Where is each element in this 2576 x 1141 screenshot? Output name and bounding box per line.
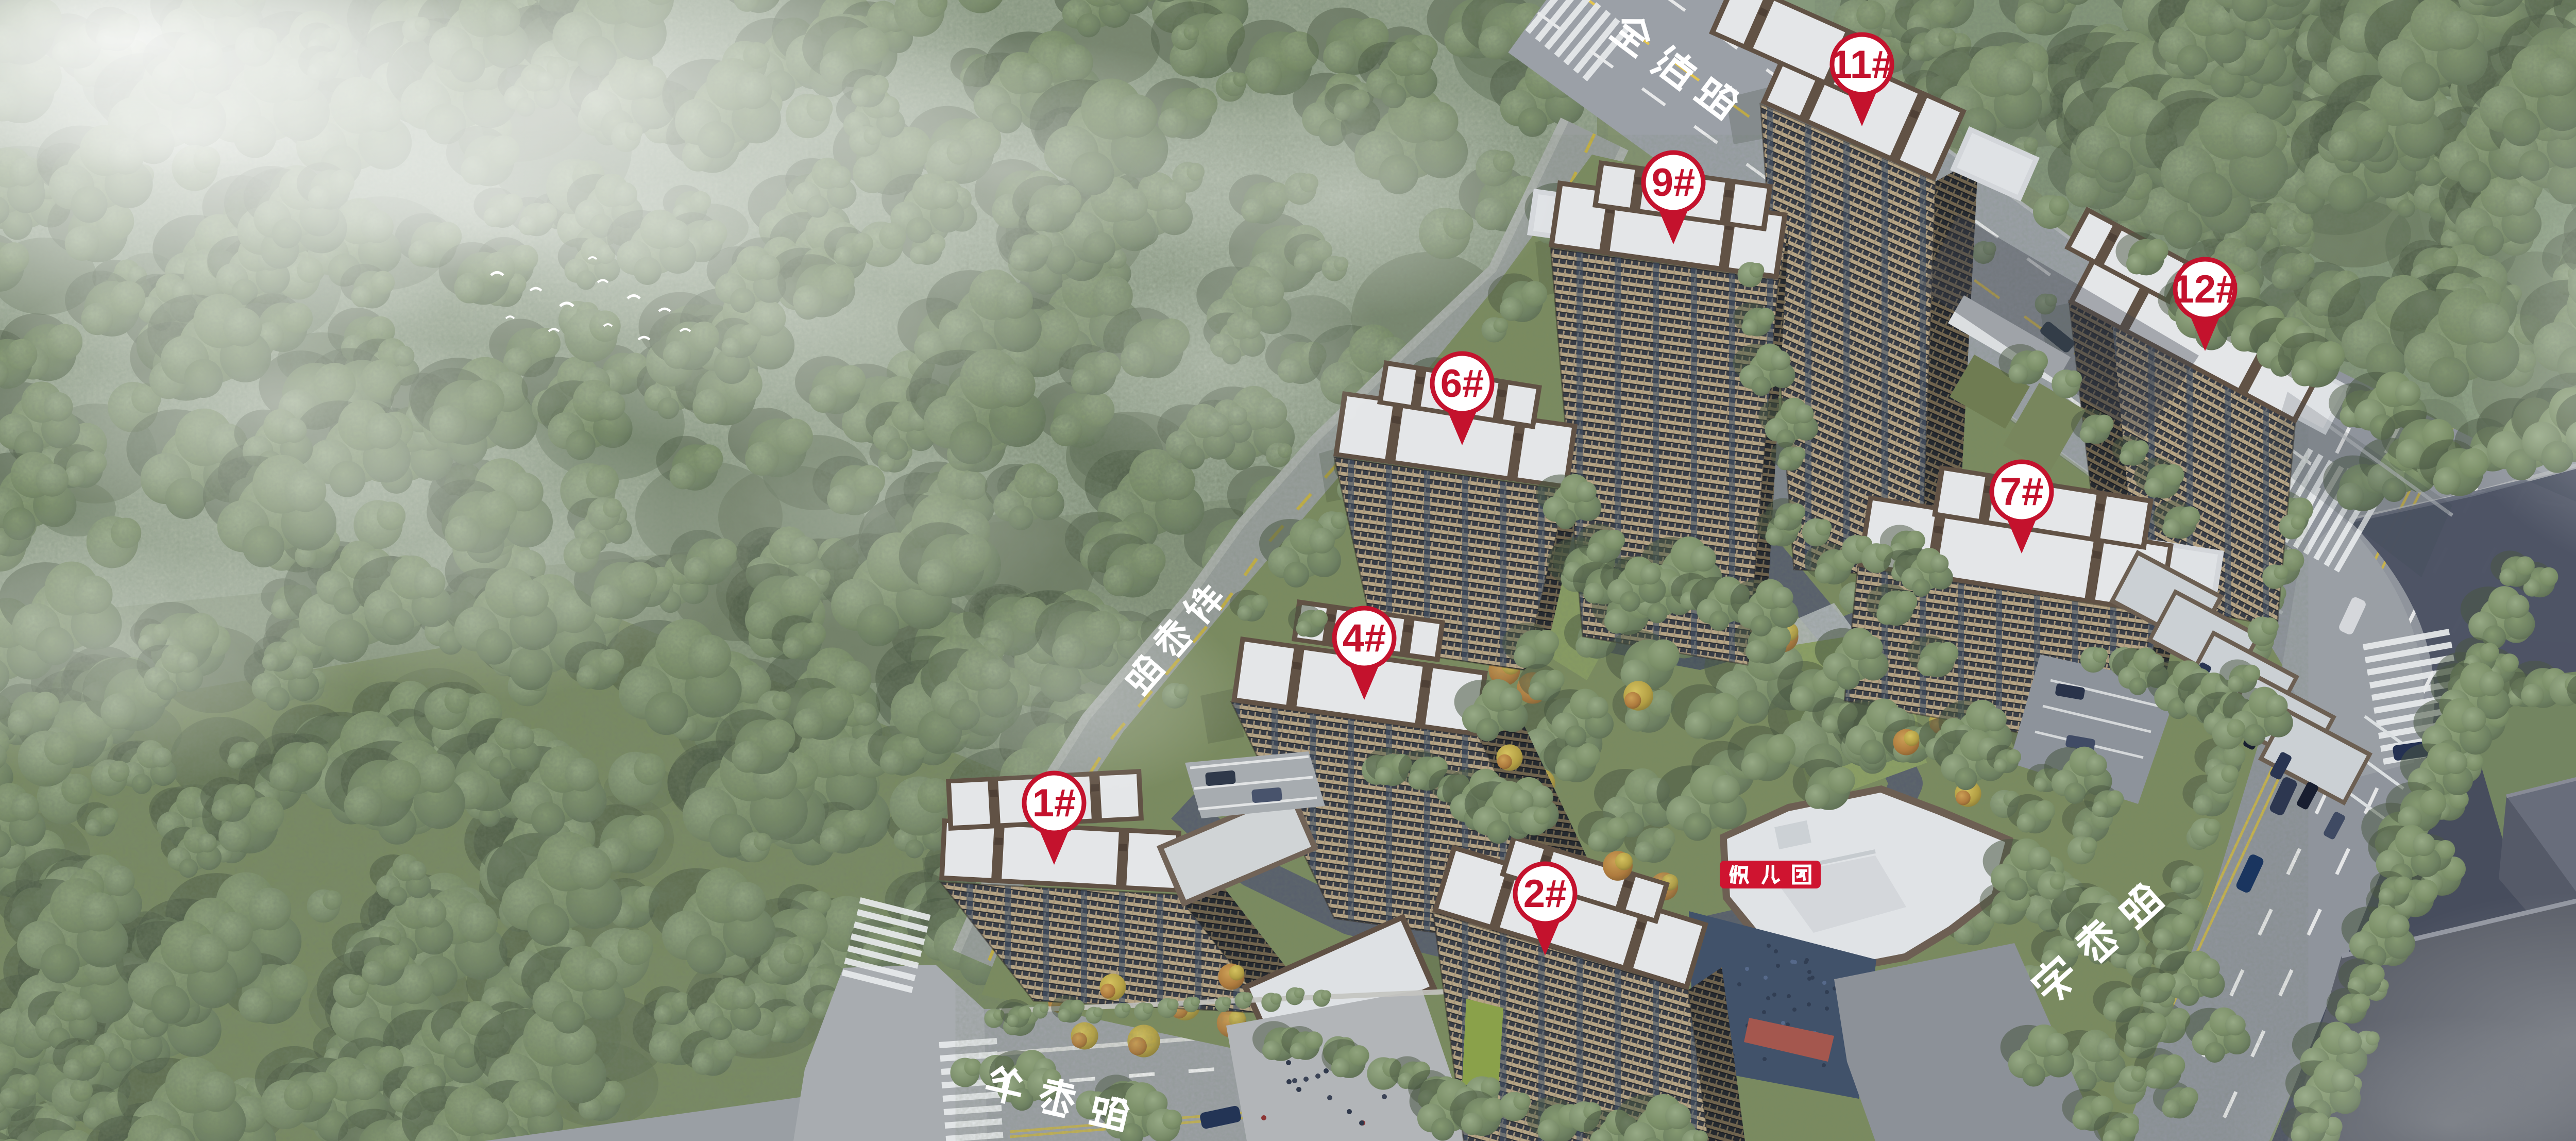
svg-text:9#: 9#: [1652, 161, 1696, 205]
svg-text:2#: 2#: [1523, 872, 1567, 916]
svg-text:7#: 7#: [2000, 470, 2044, 514]
svg-text:11#: 11#: [1831, 43, 1894, 87]
svg-text:6#: 6#: [1440, 362, 1484, 406]
svg-text:4#: 4#: [1343, 616, 1386, 660]
svg-text:12#: 12#: [2173, 267, 2238, 311]
svg-text:1#: 1#: [1032, 781, 1076, 825]
